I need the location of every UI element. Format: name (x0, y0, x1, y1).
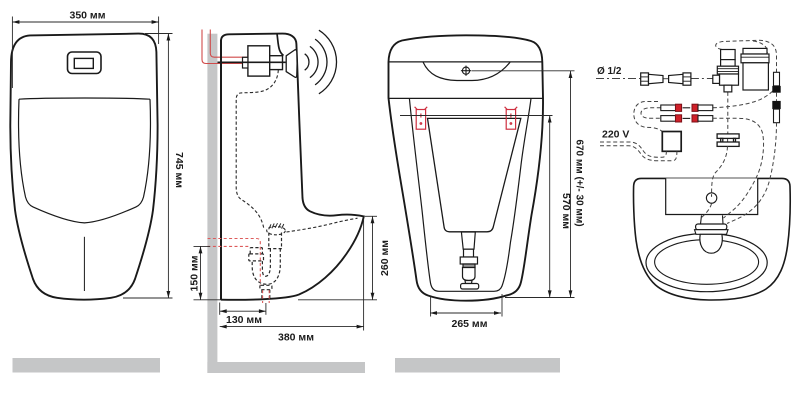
svg-text:670 мм (+/- 30 мм): 670 мм (+/- 30 мм) (573, 139, 584, 226)
svg-text:380 мм: 380 мм (278, 331, 314, 343)
svg-text:220 V: 220 V (602, 128, 629, 140)
svg-text:Ø 1/2: Ø 1/2 (597, 66, 622, 77)
svg-text:260 мм: 260 мм (379, 240, 391, 276)
svg-text:150 мм: 150 мм (189, 255, 201, 291)
svg-text:130 мм: 130 мм (226, 314, 262, 326)
svg-text:265 мм: 265 мм (452, 318, 488, 330)
svg-text:350 мм: 350 мм (70, 10, 106, 22)
svg-text:745 мм: 745 мм (173, 152, 185, 188)
